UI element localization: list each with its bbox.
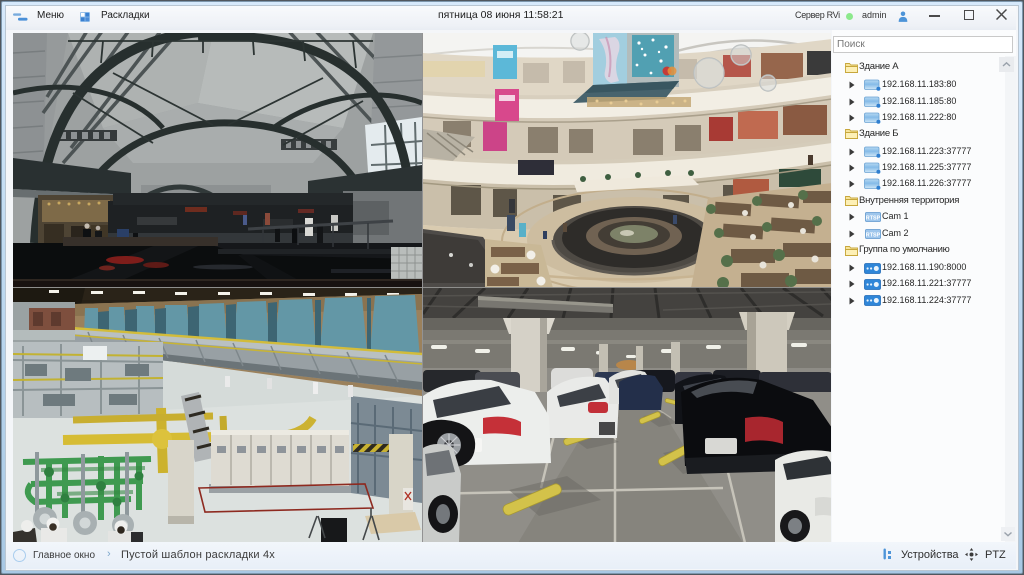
svg-text:RTSP: RTSP (866, 232, 881, 238)
svg-text:RTSP: RTSP (866, 215, 881, 221)
